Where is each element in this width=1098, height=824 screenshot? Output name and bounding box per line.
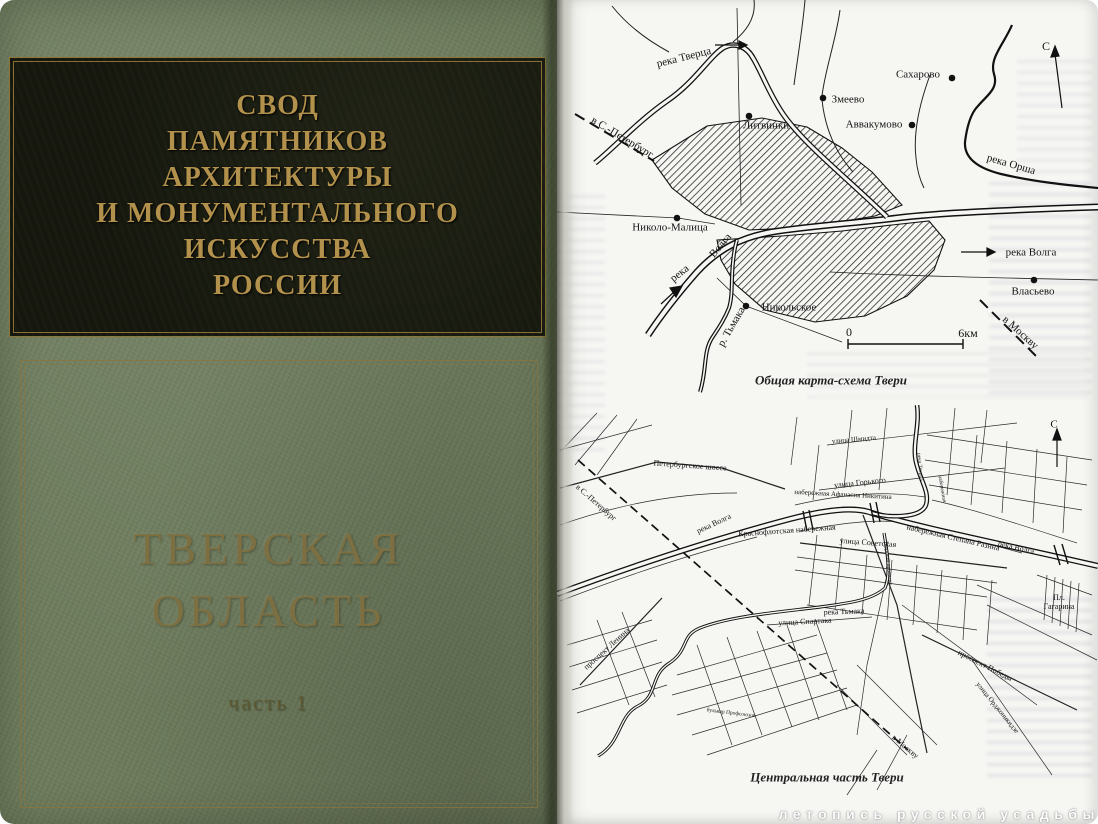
north-arrow — [1053, 429, 1061, 467]
map-label: Змеево — [832, 95, 865, 106]
overview-map: река Тверца в С.-Петербург Литвинки Змее… — [557, 0, 1098, 400]
title-line: РОССИИ — [10, 268, 545, 304]
map-label: Сахарово — [896, 70, 940, 81]
map-label: река Тверца — [915, 453, 923, 481]
map-label: Литвинки — [743, 121, 789, 132]
book-cover: СВОД ПАМЯТНИКОВ АРХИТЕКТУРЫ И МОНУМЕНТАЛ… — [0, 0, 557, 824]
title-panel: СВОД ПАМЯТНИКОВ АРХИТЕКТУРЫ И МОНУМЕНТАЛ… — [9, 57, 546, 337]
map-label: Власьево — [1011, 287, 1054, 298]
title-line: СВОД — [10, 88, 545, 124]
map-caption: Общая карта-схема Твери — [755, 374, 907, 387]
book-page: река Тверца в С.-Петербург Литвинки Змее… — [557, 0, 1098, 824]
book-photo: СВОД ПАМЯТНИКОВ АРХИТЕКТУРЫ И МОНУМЕНТАЛ… — [0, 0, 1098, 824]
scale-distance: 6км — [958, 327, 977, 339]
title-line: АРХИТЕКТУРЫ — [10, 160, 545, 196]
title-line: ПАМЯТНИКОВ — [10, 124, 545, 160]
overview-map-drawing — [557, 0, 1098, 400]
map-label: Пл. Гагарина — [1041, 593, 1077, 611]
map-caption: Центральная часть Твери — [750, 771, 904, 784]
title-line: И МОНУМЕНТАЛЬНОГО — [10, 196, 545, 232]
map-label: река Тьмака — [823, 607, 864, 616]
map-label: Аввакумово — [846, 120, 903, 131]
city-area-north — [652, 118, 902, 230]
central-map: Петербургское шоссе в С.-Петербург река … — [557, 405, 1098, 805]
north-label: С — [1050, 420, 1057, 431]
region-line: ТВЕРСКАЯ — [0, 518, 537, 580]
central-map-drawing — [557, 405, 1098, 805]
region-line: ОБЛАСТЬ — [0, 580, 537, 642]
scale-bar — [848, 339, 963, 349]
scale-zero: 0 — [846, 326, 852, 338]
region-title: ТВЕРСКАЯ ОБЛАСТЬ — [0, 518, 537, 642]
map-label: Николо-Малица — [632, 223, 708, 234]
series-title: СВОД ПАМЯТНИКОВ АРХИТЕКТУРЫ И МОНУМЕНТАЛ… — [10, 88, 545, 304]
north-arrow — [1051, 46, 1062, 108]
title-line: ИСКУССТВА — [10, 232, 545, 268]
watermark-text: летопись русской усадьбы — [779, 806, 1098, 822]
map-label: Никольское — [762, 303, 817, 314]
part-label: часть 1 — [0, 690, 537, 716]
north-label: С — [1042, 40, 1050, 52]
map-label: река Волга — [1006, 248, 1057, 259]
